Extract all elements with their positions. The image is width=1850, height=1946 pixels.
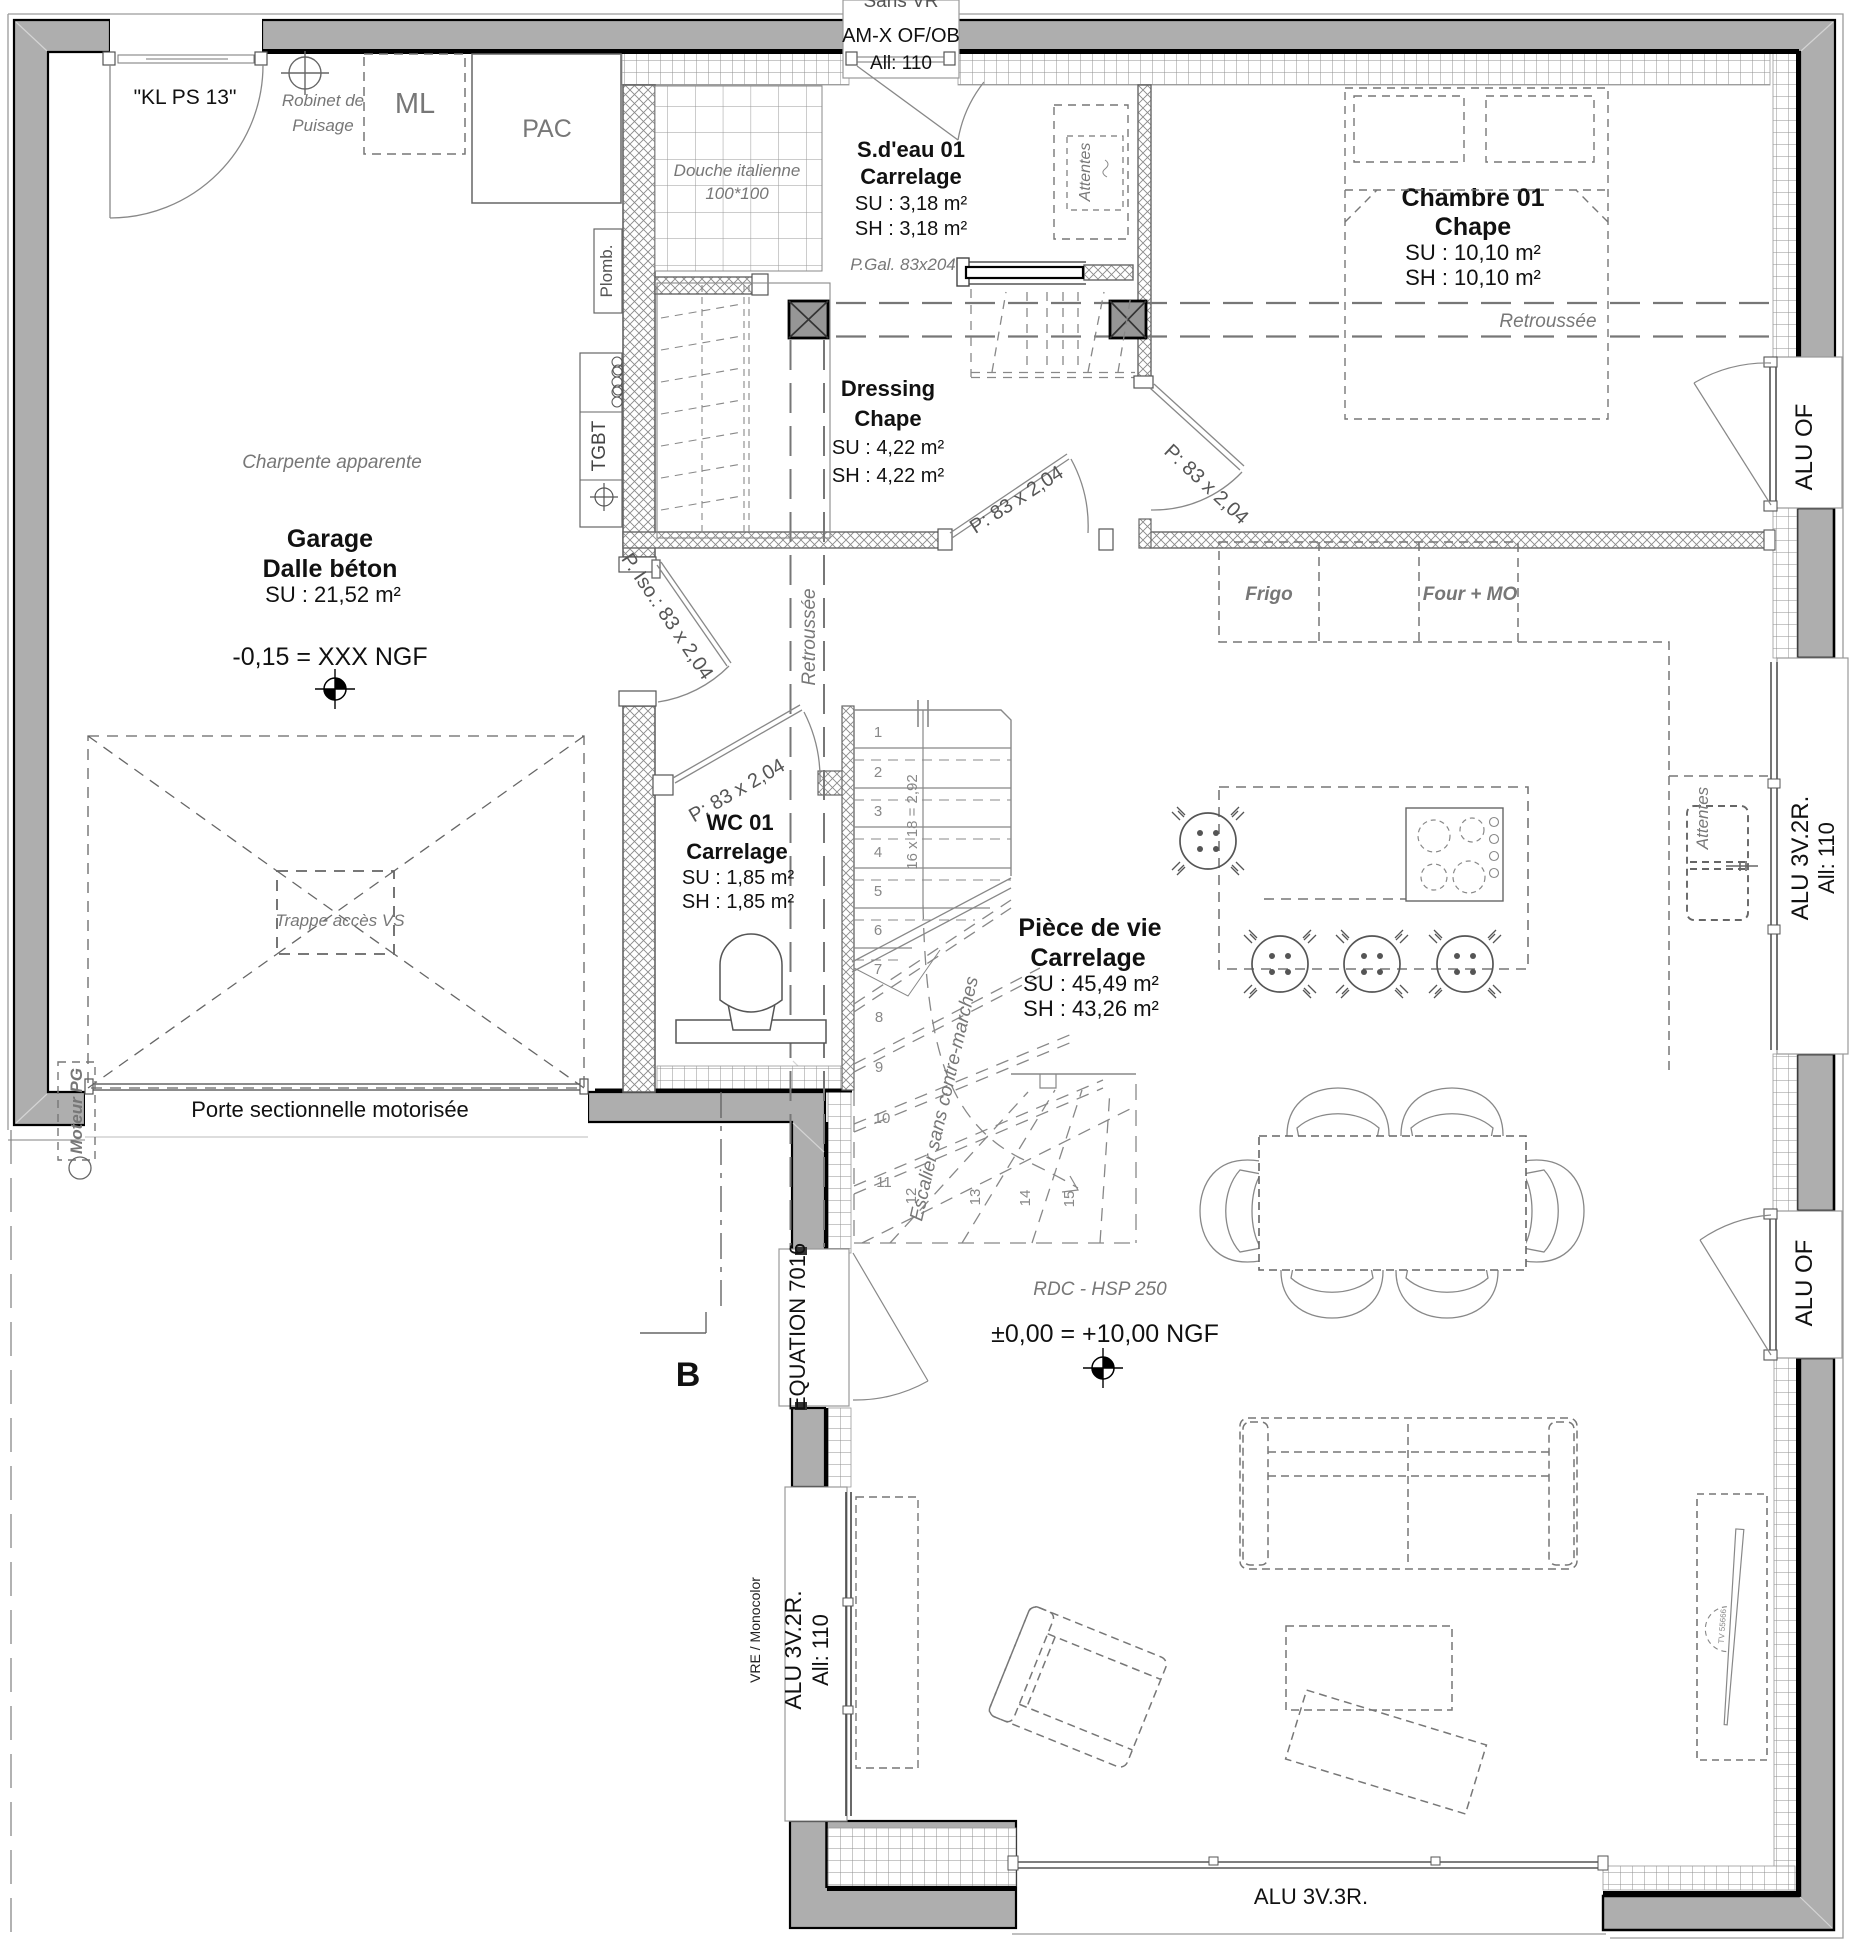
- svg-text:ALU OF: ALU OF: [1791, 1240, 1818, 1327]
- svg-text:Chape: Chape: [854, 406, 921, 431]
- svg-text:All: 110: All: 110: [808, 1614, 833, 1686]
- svg-text:Garage: Garage: [287, 525, 373, 553]
- svg-text:TGBT: TGBT: [589, 420, 610, 471]
- svg-text:Carrelage: Carrelage: [860, 164, 962, 189]
- svg-text:Carrelage: Carrelage: [686, 839, 788, 864]
- svg-text:"KL PS 13": "KL PS 13": [134, 86, 237, 109]
- svg-text:Frigo: Frigo: [1245, 584, 1293, 605]
- svg-text:Trappe accès VS: Trappe accès VS: [275, 911, 405, 930]
- svg-text:ML: ML: [395, 88, 435, 120]
- svg-text:16 x 18 = 2,92: 16 x 18 = 2,92: [904, 774, 921, 870]
- svg-text:11: 11: [876, 1174, 892, 1191]
- svg-text:Sans VR: Sans VR: [864, 0, 939, 12]
- svg-text:Charpente apparente: Charpente apparente: [242, 452, 422, 473]
- svg-text:SH : 10,10 m²: SH : 10,10 m²: [1405, 265, 1541, 290]
- svg-text:ALU 3V.2R.: ALU 3V.2R.: [1787, 796, 1814, 921]
- svg-text:WC 01: WC 01: [706, 810, 773, 835]
- svg-text:All: 110: All: 110: [870, 53, 932, 74]
- svg-text:1: 1: [874, 724, 882, 741]
- svg-text:2: 2: [874, 764, 882, 781]
- svg-text:Plomb.: Plomb.: [597, 245, 616, 298]
- svg-text:PAC: PAC: [522, 115, 572, 143]
- svg-text:Attentes: Attentes: [1077, 143, 1094, 203]
- svg-text:SU : 45,49 m²: SU : 45,49 m²: [1023, 971, 1159, 996]
- svg-text:SH : 4,22 m²: SH : 4,22 m²: [832, 465, 945, 487]
- svg-text:Four + MO: Four + MO: [1423, 584, 1518, 605]
- svg-text:7: 7: [874, 961, 882, 978]
- svg-text:100*100: 100*100: [705, 184, 769, 203]
- svg-text:Retroussée: Retroussée: [1499, 311, 1596, 332]
- svg-text:-0,15 = XXX NGF: -0,15 = XXX NGF: [232, 643, 427, 671]
- svg-text:15: 15: [1061, 1191, 1078, 1208]
- svg-text:14: 14: [1017, 1190, 1034, 1207]
- svg-text:13: 13: [967, 1189, 984, 1206]
- svg-text:5: 5: [874, 883, 882, 900]
- svg-text:9: 9: [875, 1059, 883, 1076]
- svg-text:Pièce de vie: Pièce de vie: [1018, 914, 1161, 942]
- svg-text:ALU 3V.3R.: ALU 3V.3R.: [1254, 1884, 1368, 1909]
- svg-text:8: 8: [875, 1009, 883, 1026]
- svg-text:4: 4: [874, 844, 882, 861]
- svg-text:Moteur PG: Moteur PG: [67, 1068, 86, 1154]
- svg-text:Porte sectionnelle motorisée: Porte sectionnelle motorisée: [191, 1097, 469, 1122]
- svg-text:±0,00 = +10,00 NGF: ±0,00 = +10,00 NGF: [991, 1320, 1219, 1348]
- svg-text:SU : 21,52 m²: SU : 21,52 m²: [265, 582, 401, 607]
- svg-text:6: 6: [874, 922, 882, 939]
- svg-text:SU : 1,85 m²: SU : 1,85 m²: [682, 867, 795, 889]
- svg-text:B: B: [676, 1356, 701, 1394]
- svg-text:SU : 10,10 m²: SU : 10,10 m²: [1405, 240, 1541, 265]
- svg-text:ALU OF: ALU OF: [1791, 404, 1818, 491]
- svg-text:Attentes: Attentes: [1693, 786, 1712, 850]
- svg-text:RDC - HSP 250: RDC - HSP 250: [1033, 1279, 1167, 1300]
- svg-text:Retroussée: Retroussée: [799, 588, 820, 685]
- svg-text:AM-X OF/OB: AM-X OF/OB: [842, 25, 960, 47]
- svg-text:Dalle béton: Dalle béton: [263, 555, 398, 583]
- svg-text:10: 10: [874, 1110, 891, 1127]
- svg-text:VRE / Monocolor: VRE / Monocolor: [747, 1577, 763, 1683]
- svg-text:SU : 4,22 m²: SU : 4,22 m²: [832, 437, 945, 459]
- svg-text:SH : 1,85 m²: SH : 1,85 m²: [682, 891, 795, 913]
- svg-text:P.Gal. 83x204: P.Gal. 83x204: [850, 255, 956, 274]
- svg-text:Chape: Chape: [1435, 213, 1512, 241]
- svg-text:Douche italienne: Douche italienne: [674, 161, 801, 180]
- svg-text:EQUATION 7016: EQUATION 7016: [785, 1243, 810, 1411]
- svg-text:All: 110: All: 110: [1814, 822, 1839, 894]
- svg-text:SU : 3,18 m²: SU : 3,18 m²: [855, 193, 968, 215]
- svg-text:Dressing: Dressing: [841, 376, 935, 401]
- svg-text:SH : 43,26 m²: SH : 43,26 m²: [1023, 996, 1159, 1021]
- svg-text:S.d'eau 01: S.d'eau 01: [857, 137, 965, 162]
- svg-text:Carrelage: Carrelage: [1030, 944, 1145, 972]
- svg-text:Robinet de: Robinet de: [282, 91, 364, 110]
- svg-text:3: 3: [874, 803, 882, 820]
- svg-text:SH : 3,18 m²: SH : 3,18 m²: [855, 218, 968, 240]
- svg-text:Puisage: Puisage: [292, 116, 353, 135]
- svg-text:Chambre 01: Chambre 01: [1401, 184, 1544, 212]
- svg-text:ALU 3V.2R.: ALU 3V.2R.: [780, 1590, 806, 1709]
